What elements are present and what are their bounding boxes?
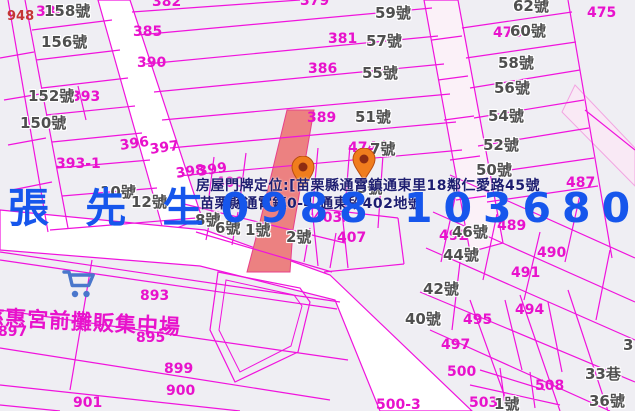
parcel-label: 379 bbox=[300, 0, 329, 8]
parcel-label: 52號 bbox=[483, 138, 519, 153]
contact-name: 張 先 生 bbox=[8, 184, 215, 232]
parcel-label: 396 bbox=[119, 135, 150, 153]
parcel-label: 54號 bbox=[488, 109, 524, 124]
parcel-label: 386 bbox=[308, 62, 337, 76]
parcel-label: 33巷 bbox=[585, 367, 621, 382]
parcel-label: 497 bbox=[441, 338, 470, 352]
parcel-label: 389 bbox=[307, 111, 336, 125]
parcel-label: 56號 bbox=[494, 81, 530, 96]
parcel-label: 3 bbox=[623, 338, 633, 353]
contact-watermark: 張 先 生0988 103680 bbox=[8, 174, 635, 234]
parcel-label: 62號 bbox=[513, 0, 549, 14]
parcel-label: 899 bbox=[164, 362, 193, 376]
parcel-label: 491 bbox=[511, 266, 540, 280]
parcel-label: 381 bbox=[328, 32, 357, 46]
parcel-label: 152號 bbox=[28, 89, 74, 104]
parcel-label: 55號 bbox=[362, 66, 398, 81]
parcel-label: 490 bbox=[537, 246, 566, 260]
parcel-label: 948 bbox=[7, 10, 34, 23]
shopping-cart-icon[interactable] bbox=[62, 268, 96, 304]
parcel-label: 900 bbox=[166, 384, 195, 398]
parcel-label: 57號 bbox=[366, 34, 402, 49]
parcel-label: 382 bbox=[152, 0, 181, 9]
parcel-label: 385 bbox=[133, 25, 162, 39]
parcel-label: 495 bbox=[463, 313, 492, 327]
contact-phone: 0988 103680 bbox=[221, 184, 635, 232]
cadastral-map[interactable]: 382379384385381390386389393393-139639739… bbox=[0, 0, 635, 411]
parcel-label: 390 bbox=[137, 56, 166, 70]
parcel-label: 397 bbox=[149, 139, 180, 157]
parcel-label: 58號 bbox=[498, 56, 534, 71]
parcel-label: 158號 bbox=[44, 4, 90, 19]
parcel-label: 44號 bbox=[443, 248, 479, 263]
parcel-label: 59號 bbox=[375, 6, 411, 21]
parcel-label: 500-3 bbox=[376, 398, 421, 411]
parcel-label: 393-1 bbox=[56, 157, 101, 171]
parcel-label: 893 bbox=[140, 289, 169, 303]
parcel-label: 901 bbox=[73, 396, 102, 410]
parcel-label: 500 bbox=[447, 365, 476, 379]
parcel-label: 156號 bbox=[41, 35, 87, 50]
parcel-label: 42號 bbox=[423, 282, 459, 297]
parcel-label: 51號 bbox=[355, 110, 391, 125]
parcel-label: 40號 bbox=[405, 312, 441, 327]
parcel-label: 1號 bbox=[494, 397, 519, 411]
parcel-label: 150號 bbox=[20, 116, 66, 131]
parcel-label: 494 bbox=[515, 303, 544, 317]
parcel-label: 393 bbox=[71, 90, 100, 104]
parcel-label: 36號 bbox=[589, 394, 625, 409]
parcel-label: 508 bbox=[535, 379, 564, 393]
parcel-label: 60號 bbox=[510, 24, 546, 39]
parcel-label: 475 bbox=[587, 6, 616, 20]
